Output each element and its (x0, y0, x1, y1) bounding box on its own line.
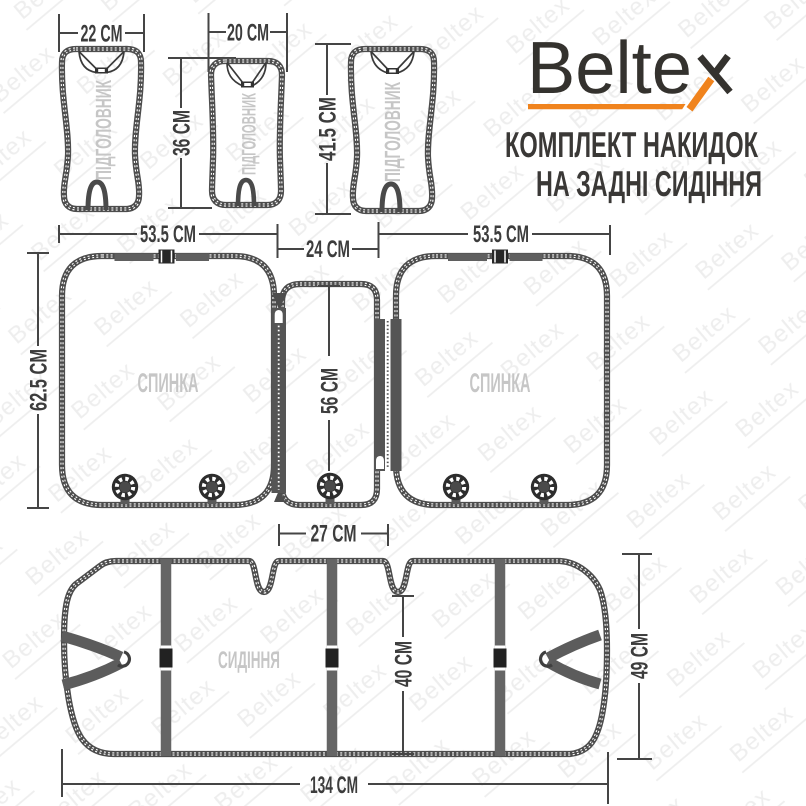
svg-text:ПІДГОЛОВНИК: ПІДГОЛОВНИК (91, 80, 116, 180)
svg-text:49 CM: 49 CM (627, 633, 654, 679)
svg-text:СИДІННЯ: СИДІННЯ (218, 647, 280, 674)
svg-text:40 CM: 40 CM (391, 641, 418, 687)
svg-text:53.5 CM: 53.5 CM (140, 221, 196, 248)
svg-text:56 CM: 56 CM (317, 368, 344, 414)
svg-text:ПІДГОЛОВНИК: ПІДГОЛОВНИК (380, 82, 405, 182)
svg-text:62.5 CM: 62.5 CM (26, 349, 53, 411)
svg-text:КОМПЛЕКТ НАКИДОК: КОМПЛЕКТ НАКИДОК (505, 124, 759, 165)
svg-text:НА ЗАДНІ СИДІННЯ: НА ЗАДНІ СИДІННЯ (536, 163, 762, 204)
svg-text:27 CM: 27 CM (311, 521, 357, 548)
svg-text:24 CM: 24 CM (306, 236, 350, 263)
svg-text:СПИНКА: СПИНКА (138, 368, 199, 398)
svg-text:41.5 CM: 41.5 CM (315, 97, 342, 161)
svg-text:20 CM: 20 CM (227, 20, 269, 47)
svg-text:53.5 CM: 53.5 CM (473, 221, 529, 248)
svg-text:Belte: Belte (527, 26, 692, 109)
svg-text:134 CM: 134 CM (310, 772, 358, 799)
svg-text:36 CM: 36 CM (169, 110, 196, 156)
svg-text:22 CM: 22 CM (81, 21, 123, 48)
svg-text:СПИНКА: СПИНКА (470, 368, 531, 398)
svg-text:ПІДГОЛОВНИК: ПІДГОЛОВНИК (239, 93, 261, 175)
